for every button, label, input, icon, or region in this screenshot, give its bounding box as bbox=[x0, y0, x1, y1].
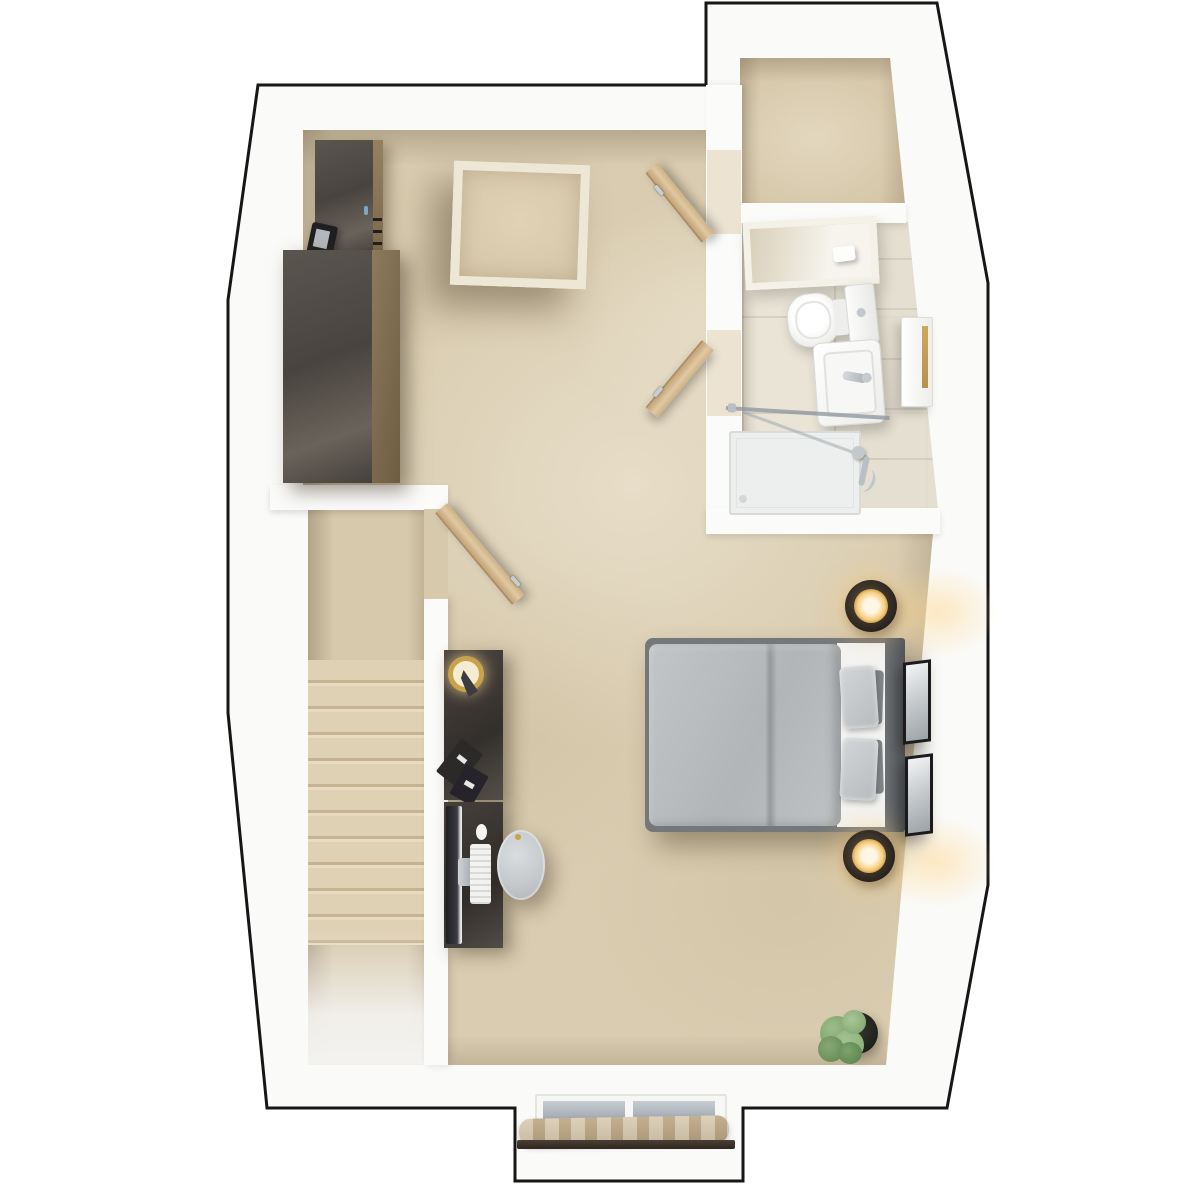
plant-foliage bbox=[838, 1042, 862, 1064]
shower-hose bbox=[852, 465, 879, 494]
wardrobe-vent-slot bbox=[373, 230, 382, 233]
lamp-glow bbox=[852, 839, 886, 873]
mouse bbox=[476, 824, 487, 840]
wardrobe-wide bbox=[283, 250, 400, 483]
shower-fixture bbox=[852, 442, 880, 496]
desk-chair bbox=[497, 830, 545, 900]
staircase-lower-landing bbox=[308, 510, 425, 1065]
flush-button bbox=[856, 308, 866, 318]
sideboard bbox=[444, 650, 503, 800]
plant-foliage bbox=[842, 1010, 866, 1034]
bed-headboard bbox=[885, 638, 905, 832]
desk bbox=[444, 802, 503, 948]
keyboard bbox=[470, 844, 491, 904]
bed-pillow bbox=[839, 665, 879, 729]
stairwell-floor bbox=[308, 510, 425, 1065]
wall-stairwell-top bbox=[270, 485, 448, 510]
bathroom-doorway-threshold bbox=[707, 330, 741, 416]
lamp-glow bbox=[854, 589, 888, 623]
toilet-cistern bbox=[844, 283, 880, 346]
bathroom-cabinet bbox=[901, 317, 933, 407]
bathroom-mirror bbox=[742, 216, 879, 291]
nightstand-lamp-bottom bbox=[843, 830, 895, 882]
soap-dish bbox=[832, 245, 856, 263]
shower-tray bbox=[729, 431, 861, 515]
wardrobe-vent-slot bbox=[373, 218, 382, 221]
wall-art-frame-1 bbox=[903, 659, 931, 744]
curtain-rod bbox=[517, 1140, 735, 1149]
double-bed bbox=[645, 638, 905, 832]
shower-drain bbox=[739, 495, 747, 503]
nightstand-lamp-top bbox=[845, 580, 897, 632]
potted-plant bbox=[812, 1002, 884, 1072]
skylight bbox=[450, 161, 590, 290]
wardrobe-vent-slot bbox=[373, 242, 382, 245]
storage-room-floor bbox=[740, 58, 906, 204]
roof-window bbox=[515, 1090, 745, 1185]
wardrobe-side-panel bbox=[372, 250, 400, 483]
wardrobe-handle bbox=[364, 206, 368, 215]
cabinet-wood-handle bbox=[922, 326, 928, 388]
storage-doorway-threshold bbox=[707, 150, 741, 234]
bed-pillow bbox=[839, 737, 878, 801]
floor-plan-stage bbox=[0, 0, 1200, 1200]
wall-art-frame-2 bbox=[905, 753, 933, 836]
bed-duvet bbox=[649, 644, 841, 826]
chair-gold-button bbox=[515, 834, 521, 840]
washbasin-bowl bbox=[823, 349, 877, 416]
wardrobe-side-panel bbox=[373, 140, 383, 258]
